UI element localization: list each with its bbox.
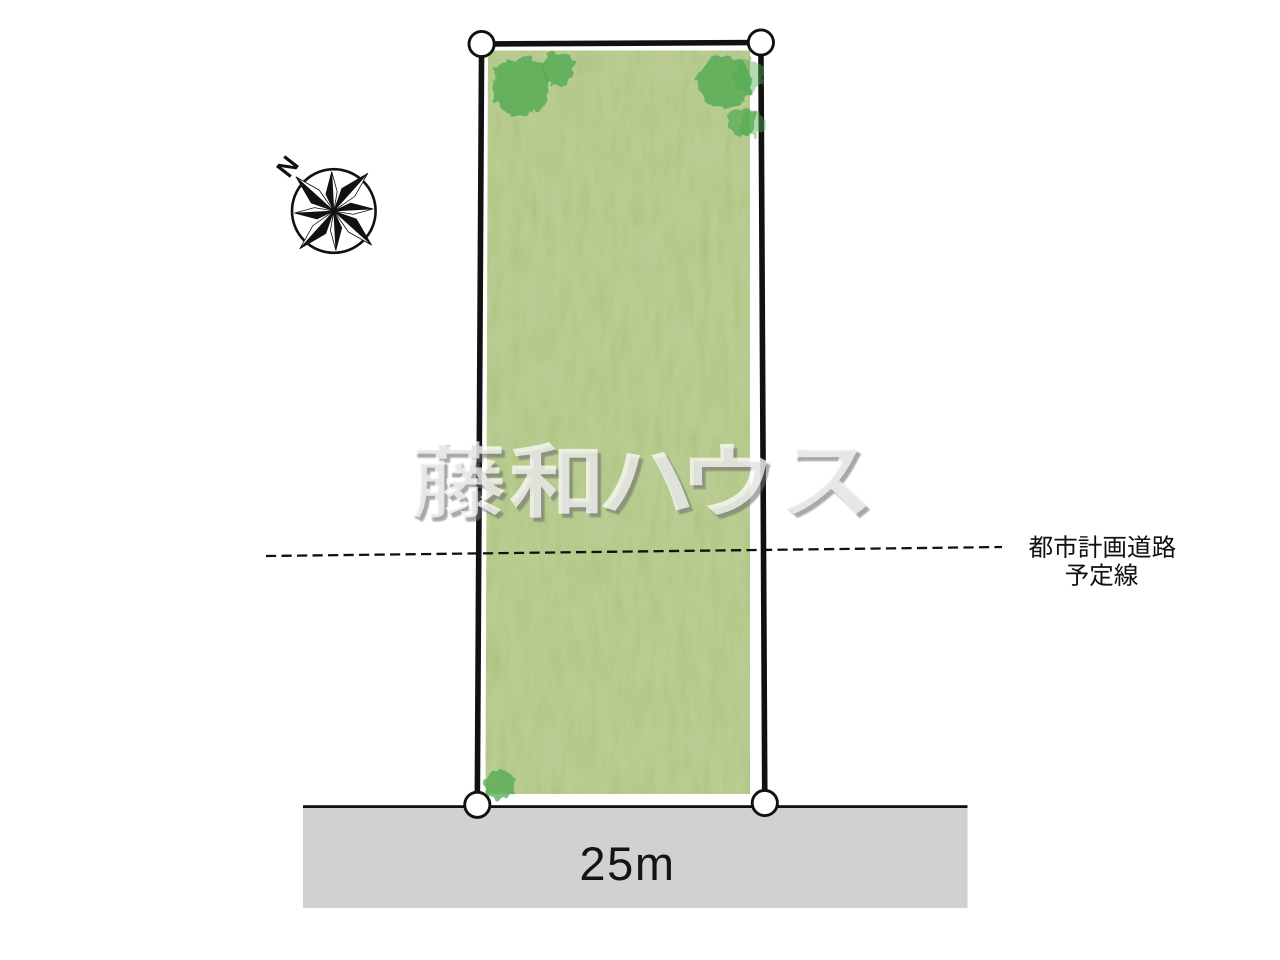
svg-text:25m: 25m xyxy=(579,837,675,890)
